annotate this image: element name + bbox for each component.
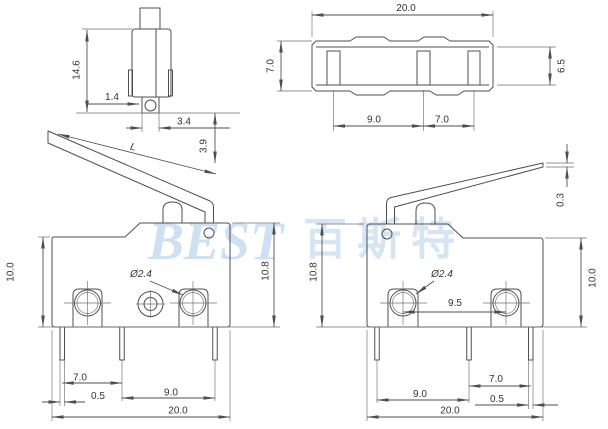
top-view-terminal-right <box>468 51 480 85</box>
dim-pin-pitch-right-label: 9.0 <box>164 388 178 399</box>
dim-top-height-label: 7.0 <box>266 59 277 73</box>
dim-roller-width-label: 3.4 <box>177 117 191 128</box>
dim-body-height-label-left: 10.0 <box>6 262 17 282</box>
side-view-roller <box>145 100 156 111</box>
dim-pin-thickness-label-right-view: 0.5 <box>490 394 504 405</box>
dim-pin-pitch-right-label-right-view: 7.0 <box>489 374 503 385</box>
dim-pin-thickness-label: 0.5 <box>91 391 105 402</box>
front-view-left: L Ø2.4 10.0 10.8 7.0 0.5 9.0 20.0 <box>6 131 281 421</box>
dim-pin-pitch-left-label: 7.0 <box>73 373 87 384</box>
side-view: 14.6 1.4 3.4 3.9 <box>72 8 241 163</box>
dim-top-inner-height-label: 6.5 <box>557 59 568 73</box>
technical-drawing-canvas: BEST 百斯特 14.6 1.4 3.4 3.9 <box>0 0 608 429</box>
dim-width-label-right-view: 20.0 <box>440 406 460 417</box>
top-view: 20.0 7.0 6.5 9.0 7.0 <box>266 3 568 131</box>
dim-hole-diameter-leader-right <box>416 281 434 294</box>
dim-top-terminal-pitch-right-label: 7.0 <box>435 115 449 126</box>
dim-lever-length-label: L <box>129 141 137 153</box>
front-left-pin-middle <box>120 327 125 360</box>
dim-pin-pitch-left-label-right-view: 9.0 <box>413 389 427 400</box>
dim-lever-travel-label: 3.9 <box>199 139 210 153</box>
top-view-terminal-left <box>327 51 340 85</box>
dim-hole-diameter-leader-left <box>150 281 183 295</box>
watermark-brand-cn-text: 百斯特 <box>303 214 465 265</box>
top-view-terminal-middle <box>417 51 430 85</box>
dim-hole-diameter-label-left: Ø2.4 <box>129 269 152 280</box>
front-right-pin-left <box>375 327 380 360</box>
front-left-pin-left <box>60 327 65 360</box>
dim-side-height-label: 14.6 <box>72 60 83 80</box>
dim-total-height-label-left: 10.8 <box>261 261 272 281</box>
dim-total-height-label-right: 10.8 <box>309 262 320 282</box>
dim-top-terminal-pitch-left-label: 9.0 <box>367 115 381 126</box>
dim-lever-length-line <box>58 134 216 174</box>
front-left-pin-right <box>213 327 218 360</box>
technical-drawing-page: BEST 百斯特 14.6 1.4 3.4 3.9 <box>0 0 608 429</box>
front-right-pin-right <box>529 327 534 360</box>
front-view-right: 0.3 Ø2.4 9.5 10.8 10.0 9.0 7.0 0.5 <box>309 144 599 421</box>
top-view-outline <box>312 37 493 95</box>
side-view-body <box>132 29 171 97</box>
dim-hole-pitch-label: 9.5 <box>448 298 462 309</box>
dim-roller-offset-label: 1.4 <box>105 92 119 103</box>
dim-top-width-label: 20.0 <box>396 3 416 14</box>
front-right-pin-middle <box>467 327 472 360</box>
dim-lever-tip-label: 0.3 <box>556 193 567 207</box>
dim-width-label-left-view: 20.0 <box>168 406 188 417</box>
side-view-plunger <box>140 8 160 29</box>
dim-body-height-label-right: 10.0 <box>588 268 599 288</box>
dim-hole-diameter-label-right: Ø2.4 <box>430 269 453 280</box>
watermark: BEST 百斯特 <box>147 211 465 271</box>
